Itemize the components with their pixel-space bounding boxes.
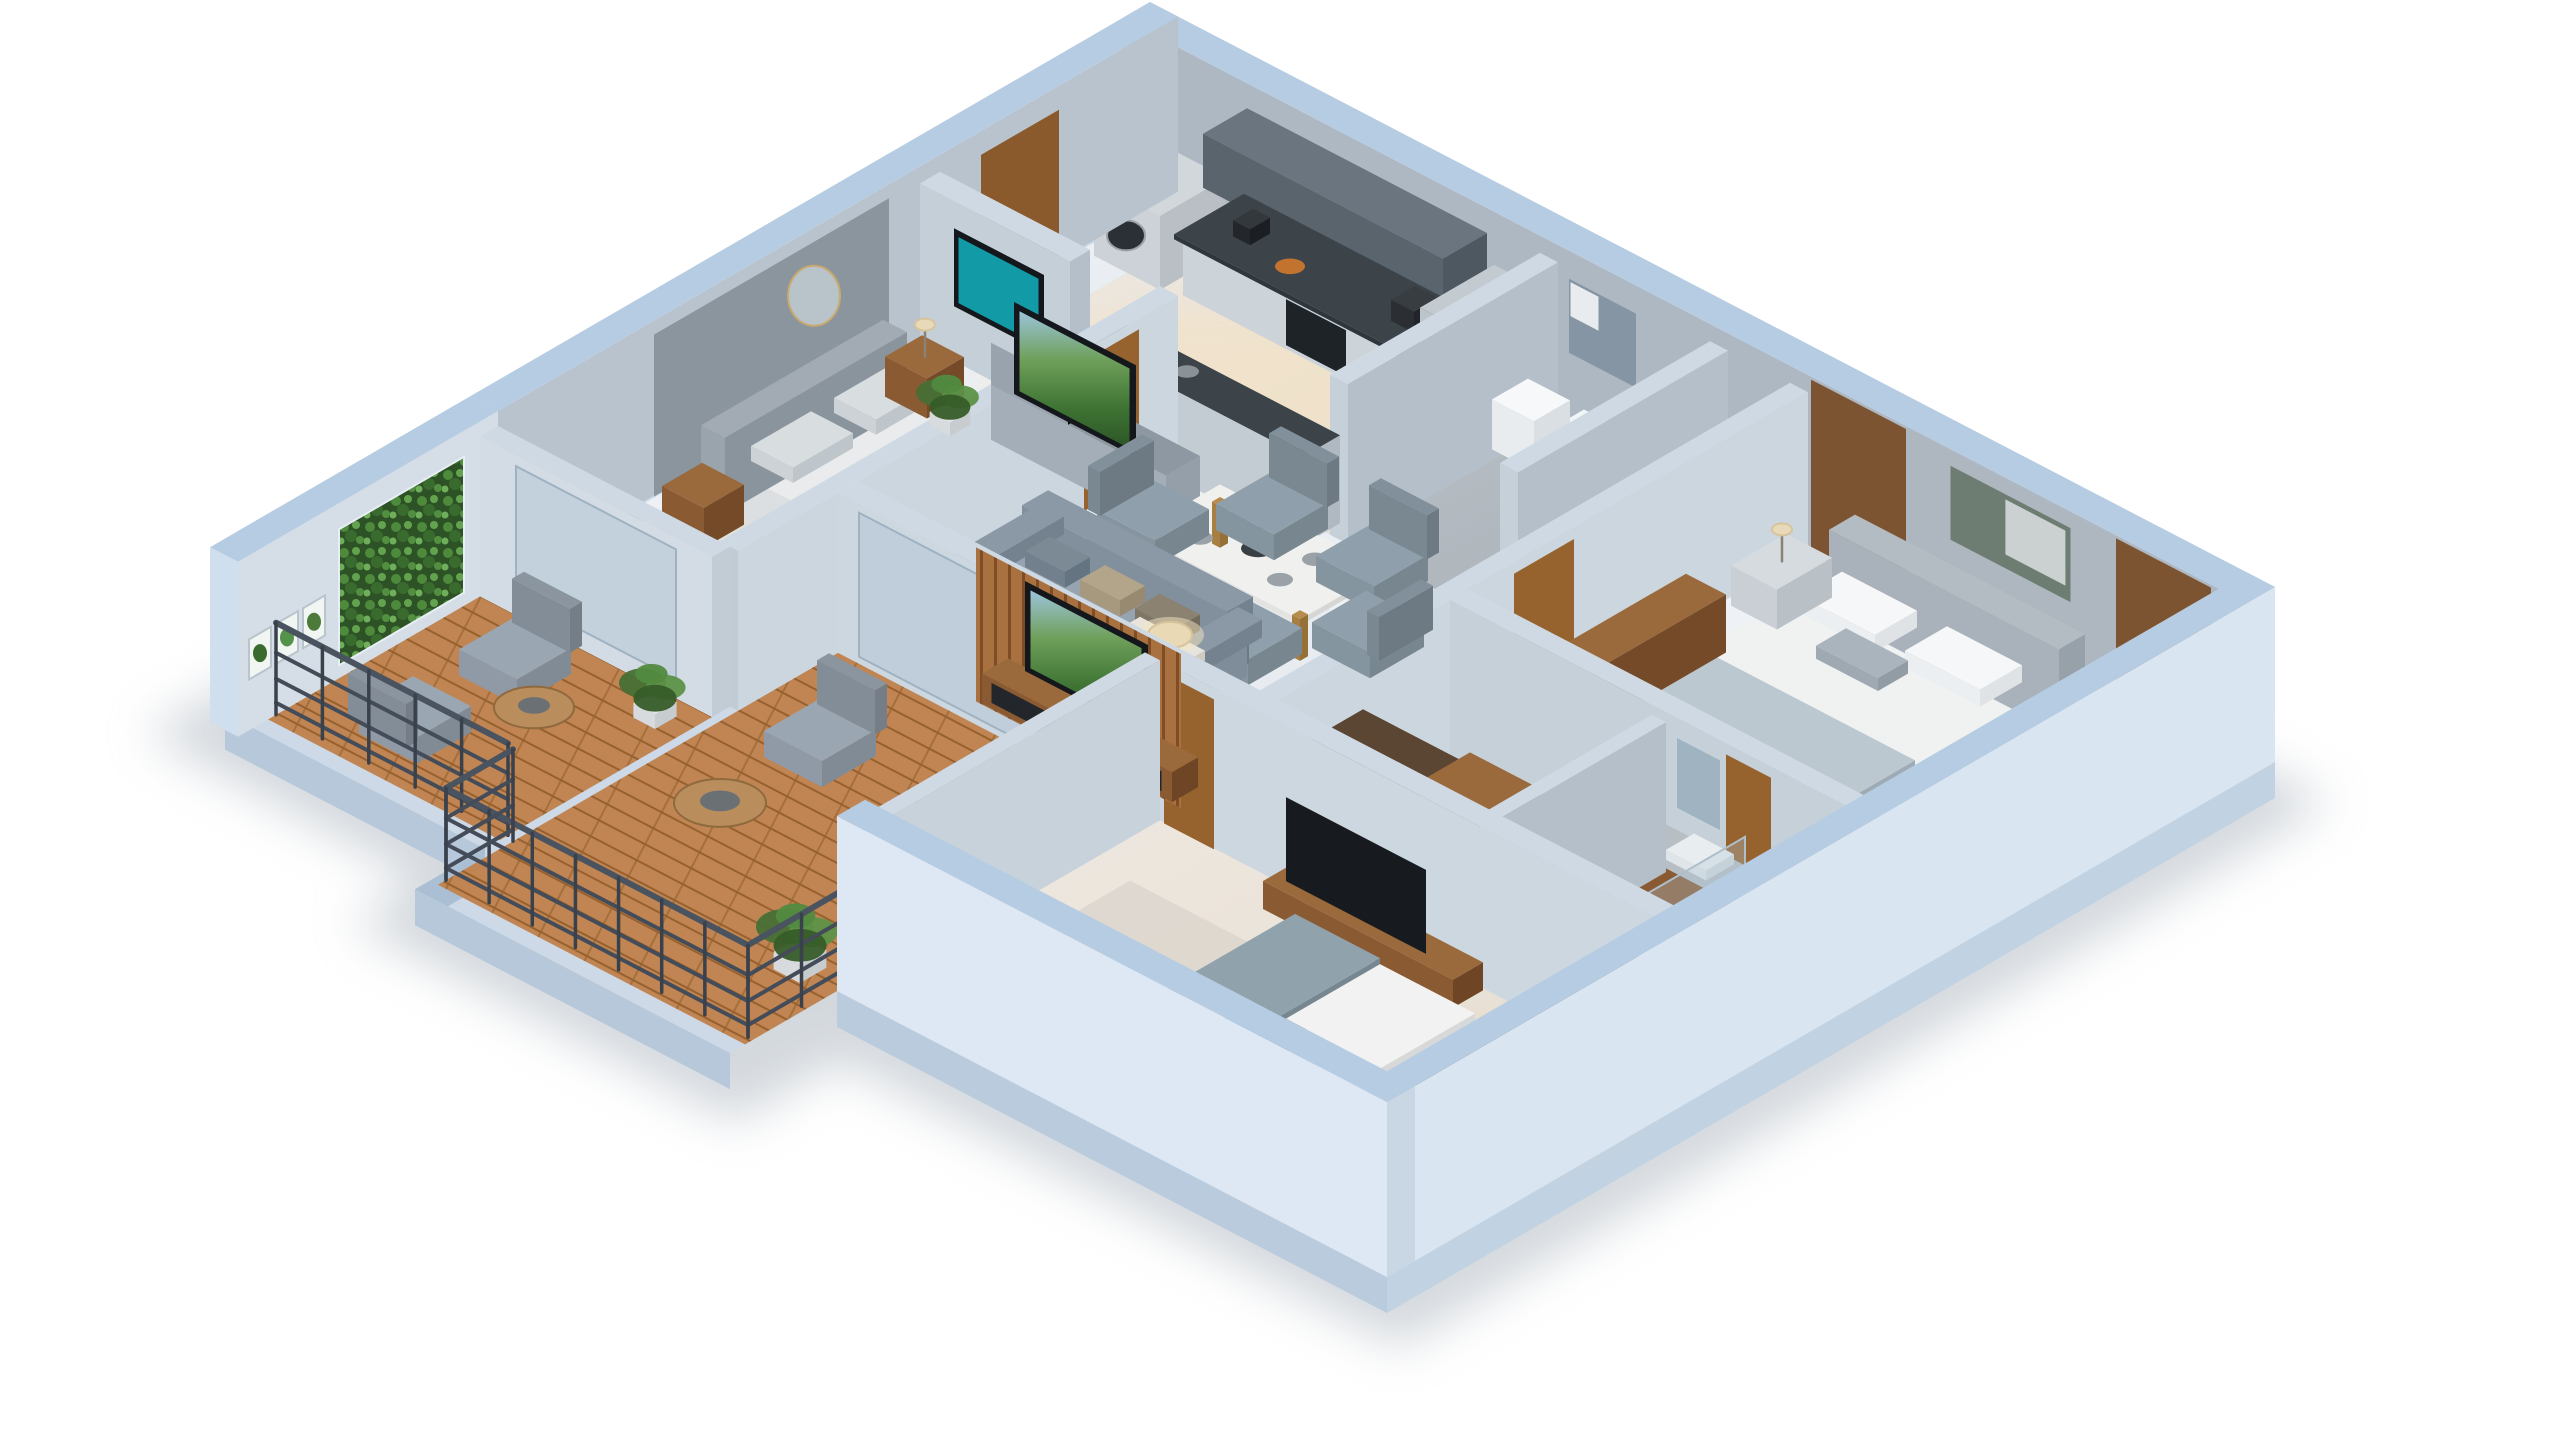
bedroom2-wall-mirror (788, 266, 840, 326)
bar-decor (1175, 365, 1199, 377)
dining-place-setting-4 (1267, 573, 1293, 587)
apartment-model (145, 2, 2330, 1348)
botanical-frame-1-leaf (307, 613, 321, 631)
balcony1-tray (518, 697, 550, 714)
counter-bowl (1275, 259, 1305, 275)
botanical-frame-3-leaf (253, 644, 267, 662)
balcony2-tray (700, 791, 740, 812)
isometric-scene (0, 0, 2560, 1440)
floorplan-3d-render (0, 0, 2560, 1440)
